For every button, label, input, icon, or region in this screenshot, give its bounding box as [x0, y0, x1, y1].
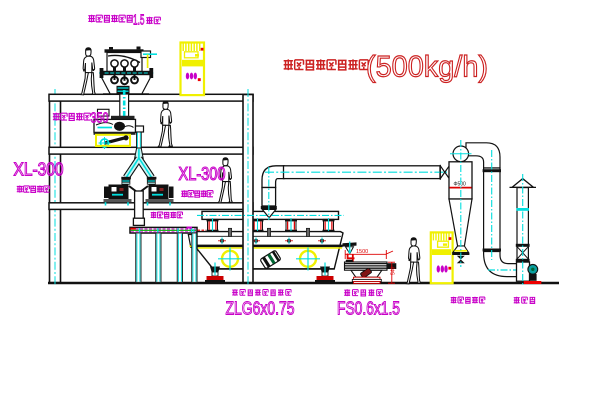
- svg-text:1.5: 1.5: [133, 12, 145, 29]
- svg-text:Φ500: Φ500: [454, 182, 467, 188]
- svg-text:540: 540: [391, 266, 397, 275]
- svg-text:350: 350: [91, 110, 109, 127]
- svg-text:FS0.6x1.5: FS0.6x1.5: [337, 299, 400, 319]
- svg-text:1500: 1500: [356, 249, 368, 255]
- svg-text:XL-300: XL-300: [179, 164, 226, 184]
- svg-text:XL-300: XL-300: [14, 160, 64, 180]
- svg-text:(500kg/h): (500kg/h): [366, 51, 488, 84]
- svg-text:ZLG6x0.75: ZLG6x0.75: [226, 299, 295, 319]
